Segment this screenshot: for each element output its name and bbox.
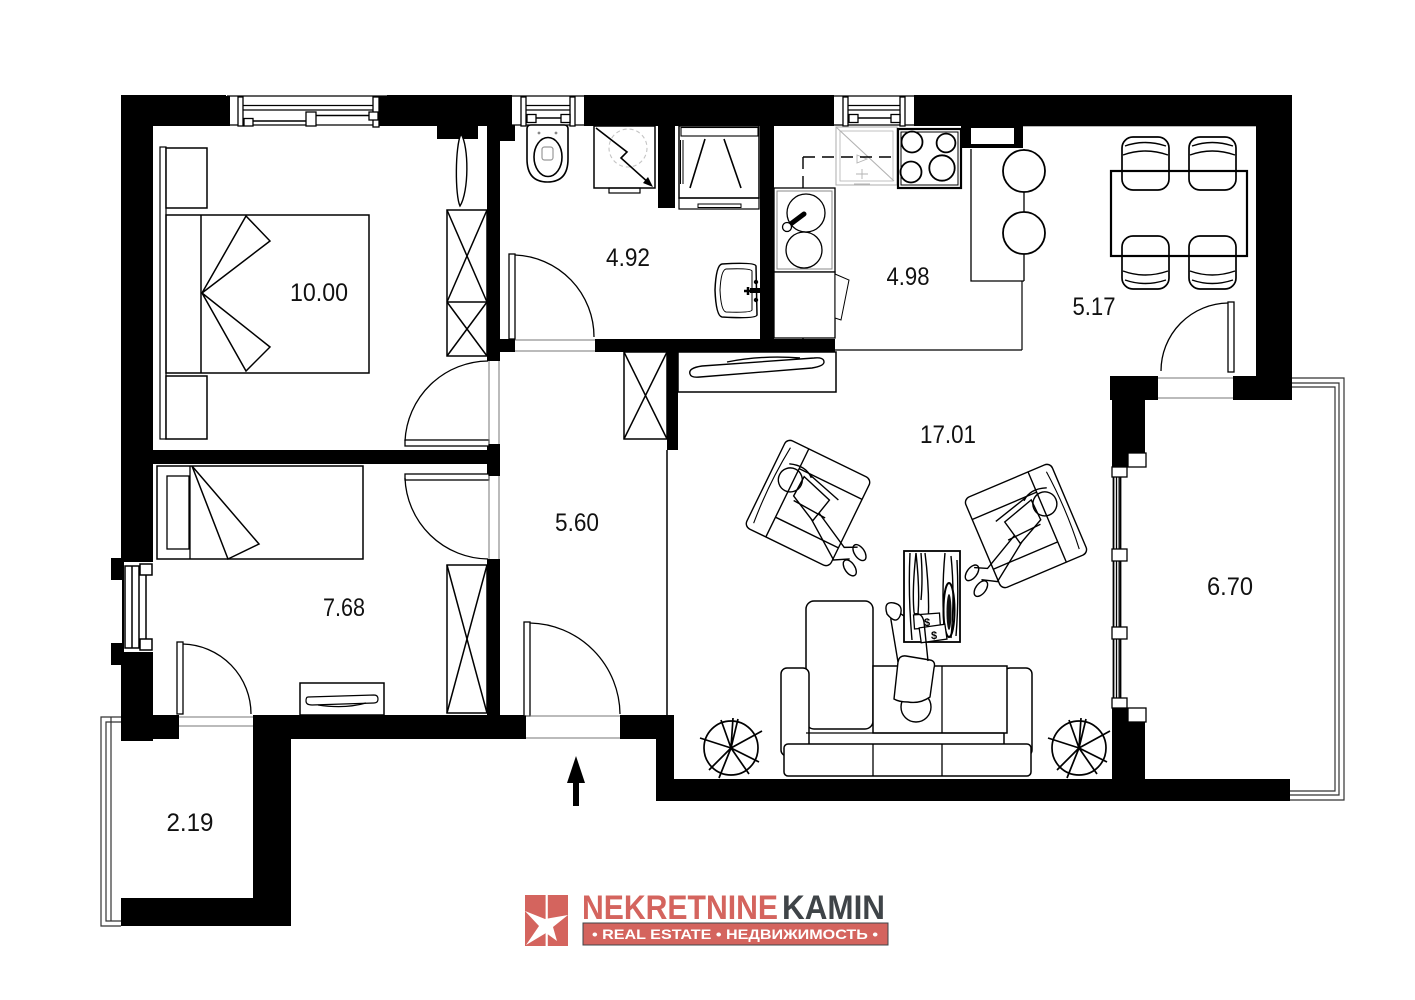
svg-text:17.01: 17.01 [920, 421, 976, 449]
svg-text:4.98: 4.98 [887, 263, 930, 291]
svg-text:4.92: 4.92 [606, 244, 650, 272]
svg-text:KAMIN: KAMIN [782, 889, 885, 927]
svg-text:2.19: 2.19 [167, 809, 214, 837]
svg-text:10.00: 10.00 [290, 279, 348, 307]
svg-text:NEKRETNINE: NEKRETNINE [582, 889, 778, 927]
svg-text:7.68: 7.68 [323, 594, 365, 622]
svg-text:5.60: 5.60 [555, 509, 599, 537]
svg-text:$: $ [931, 630, 937, 642]
svg-text:5.17: 5.17 [1073, 293, 1116, 321]
svg-text:• REAL ESTATE • НЕДВИЖИМОСТЬ •: • REAL ESTATE • НЕДВИЖИМОСТЬ • [592, 926, 878, 942]
svg-text:6.70: 6.70 [1207, 573, 1253, 601]
